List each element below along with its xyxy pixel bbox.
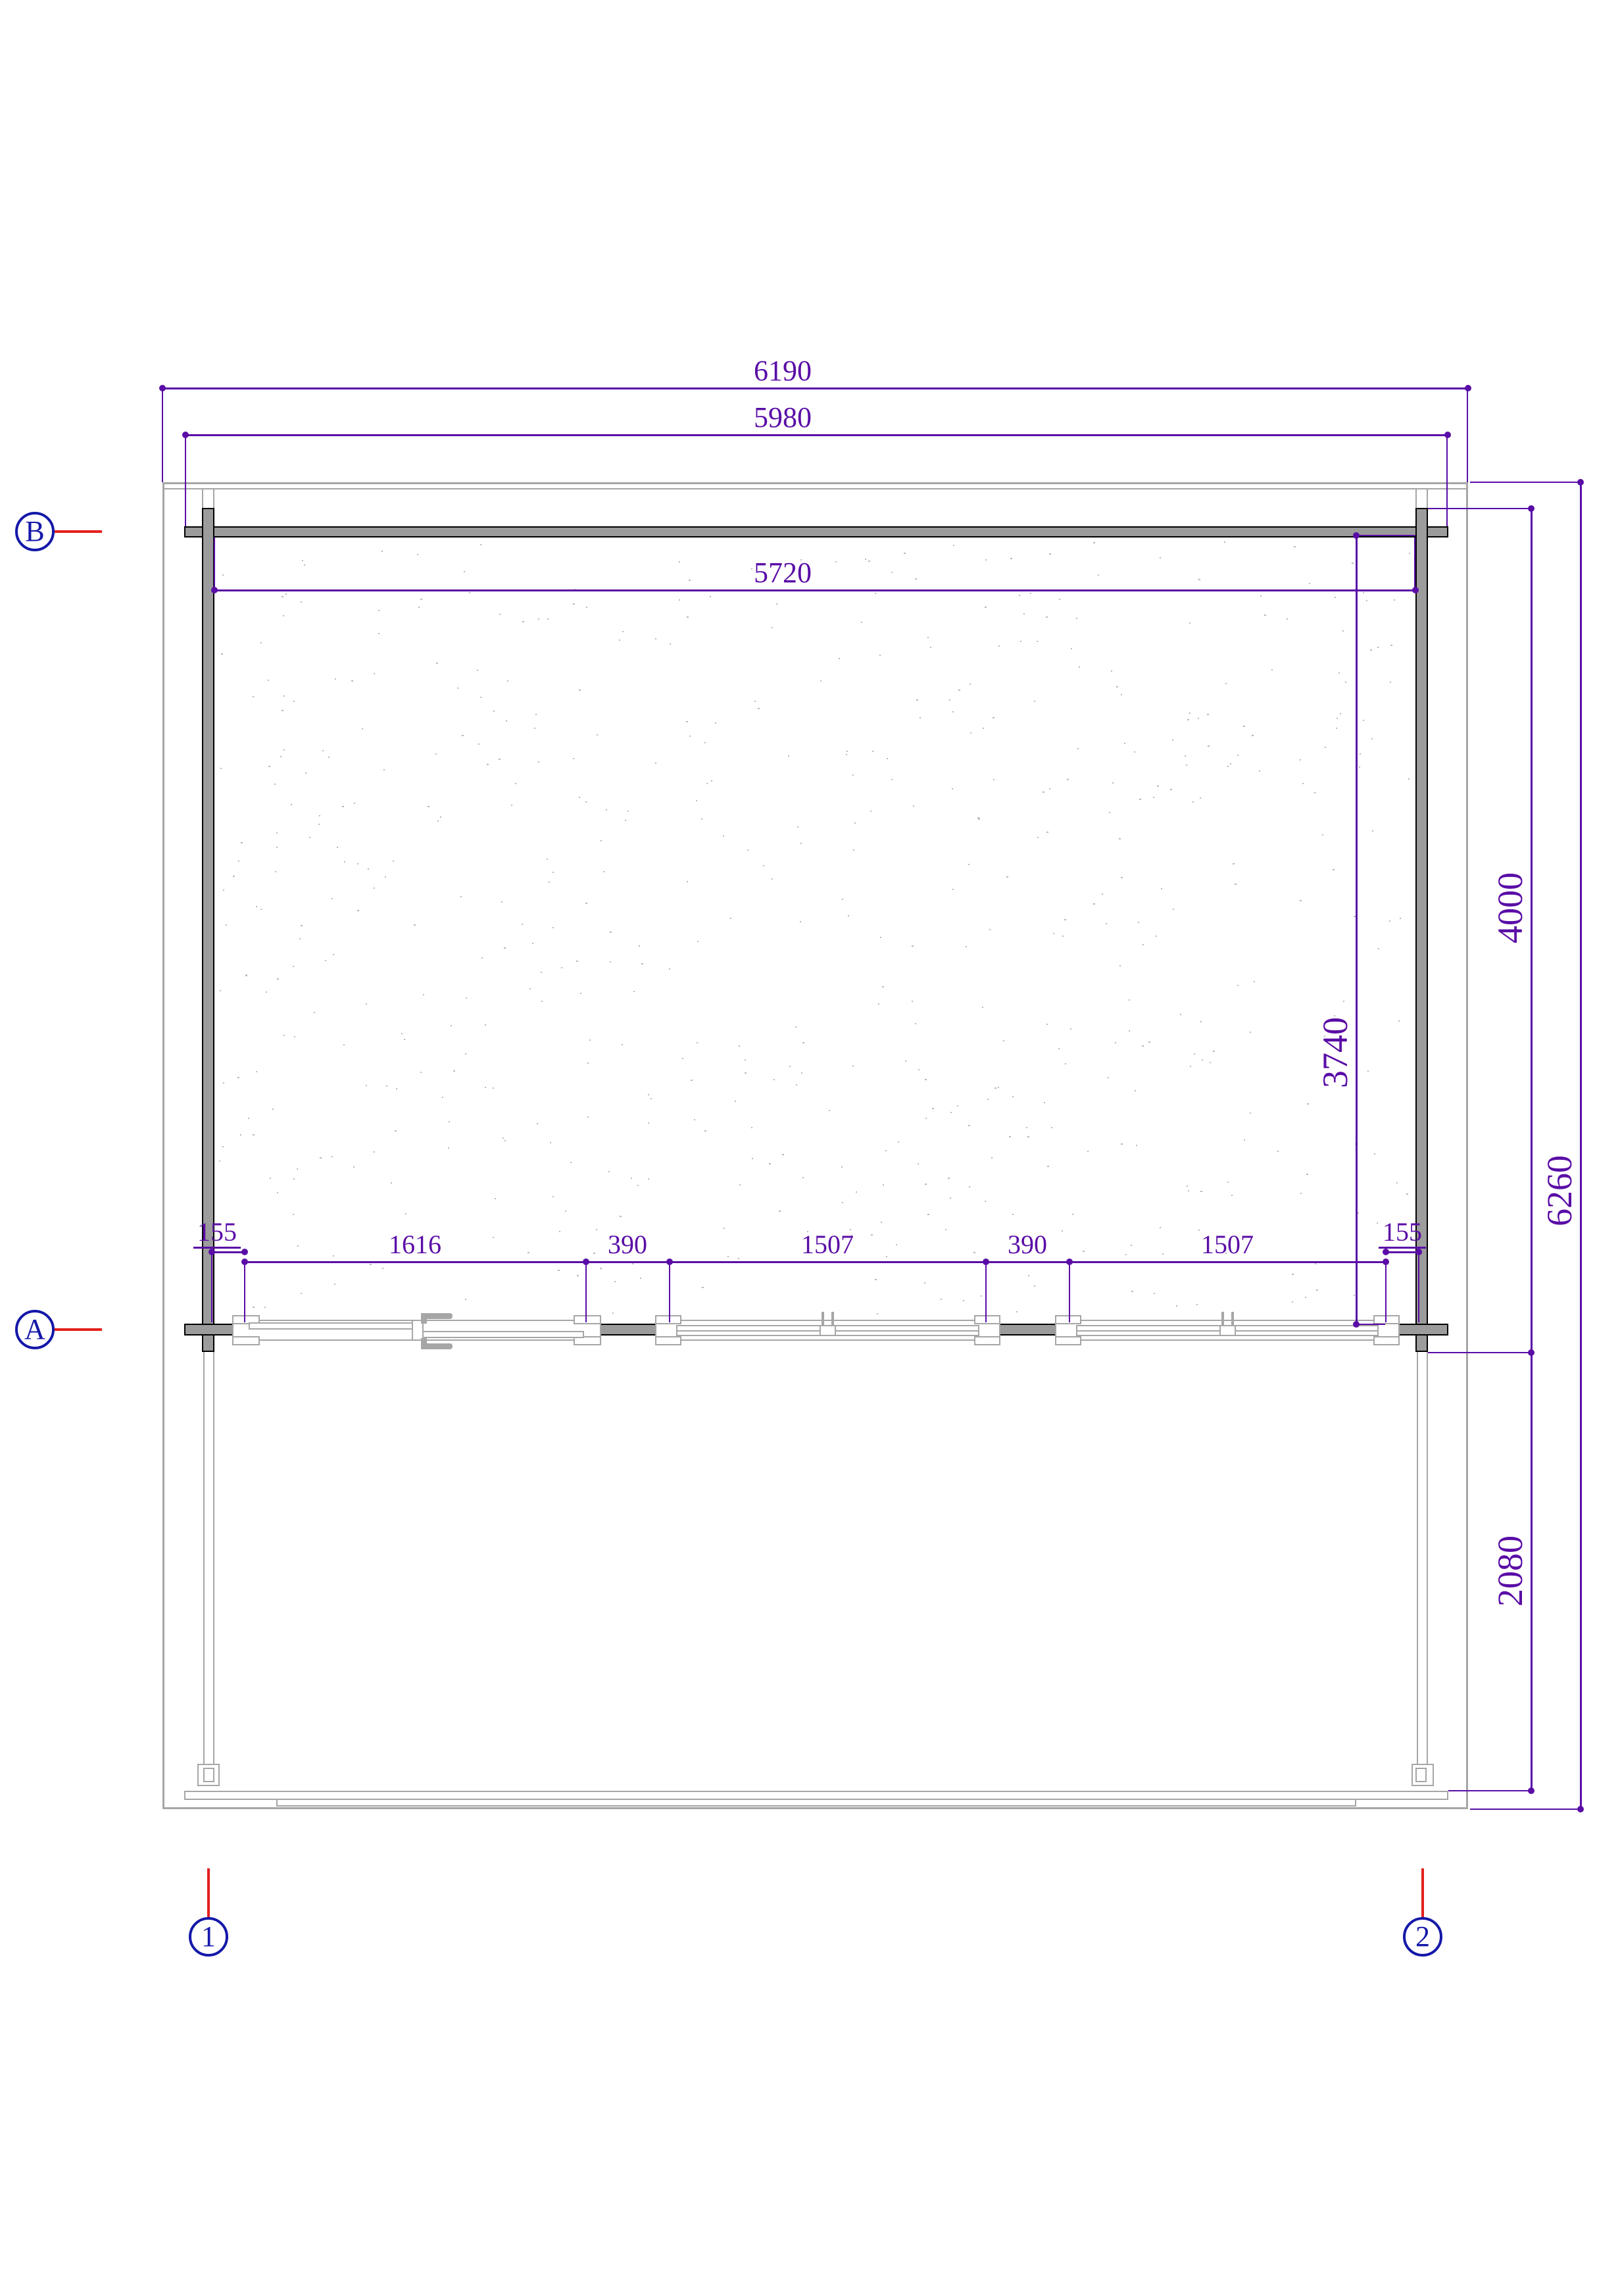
stipple-dot	[1186, 764, 1187, 766]
stipple-dot	[587, 1062, 589, 1064]
stipple-dot	[739, 1045, 740, 1047]
stipple-dot	[268, 766, 270, 767]
stipple-dot	[1200, 1191, 1202, 1192]
stipple-dot	[912, 1001, 913, 1002]
dimension-chain-line	[245, 1261, 1386, 1263]
stipple-dot	[485, 1087, 486, 1088]
dimension-interior-depth: 3740	[1317, 1017, 1353, 1088]
stipple-dot	[1287, 618, 1288, 620]
stipple-dot	[1198, 1230, 1200, 1231]
stipple-dot	[1044, 1102, 1045, 1103]
stipple-dot	[319, 815, 320, 816]
stipple-dot	[1277, 1151, 1279, 1152]
stipple-dot	[294, 1036, 295, 1037]
stipple-dot	[237, 1077, 239, 1078]
stipple-dot	[925, 1118, 927, 1119]
stipple-dot	[401, 1033, 403, 1034]
stipple-dot	[1337, 718, 1338, 719]
stipple-dot	[428, 806, 430, 807]
stipple-dot	[875, 593, 876, 594]
stipple-dot	[606, 809, 607, 811]
stipple-dot	[1049, 788, 1050, 789]
stipple-dot	[1135, 1090, 1136, 1091]
stipple-dot	[702, 1287, 704, 1288]
axis-a-leader	[55, 1328, 102, 1331]
stipple-dot	[1224, 541, 1225, 543]
stipple-dot	[275, 871, 276, 872]
stipple-dot	[1300, 1193, 1302, 1194]
stipple-dot	[260, 909, 262, 910]
stipple-dot	[852, 1065, 854, 1066]
stipple-dot	[682, 1058, 683, 1059]
stipple-dot	[927, 1214, 929, 1215]
stipple-dot	[913, 805, 914, 807]
stipple-dot	[318, 824, 320, 825]
stipple-dot	[1142, 1045, 1144, 1047]
stipple-dot	[981, 1295, 982, 1297]
stipple-dot	[639, 945, 640, 947]
stipple-dot	[1237, 755, 1239, 756]
dimension-door-width: 1616	[389, 1232, 441, 1258]
stipple-dot	[1049, 553, 1051, 555]
stipple-dot	[854, 822, 856, 824]
stipple-dot	[487, 764, 489, 765]
stipple-dot	[687, 881, 688, 882]
stipple-dot	[374, 673, 375, 674]
stipple-dot	[1210, 1062, 1211, 1063]
stipple-dot	[632, 1263, 633, 1264]
stipple-dot	[689, 580, 691, 581]
stipple-dot	[493, 1237, 494, 1238]
stipple-dot	[1400, 918, 1401, 919]
stipple-dot	[1109, 812, 1110, 813]
stipple-dot	[883, 1184, 884, 1185]
stipple-dot	[904, 553, 906, 554]
stipple-dot	[337, 847, 338, 848]
stipple-dot	[885, 1150, 887, 1151]
stipple-dot	[977, 817, 979, 818]
stipple-dot	[891, 779, 893, 780]
stipple-dot	[622, 1044, 623, 1045]
stipple-dot	[1139, 799, 1141, 800]
stipple-dot	[1208, 745, 1210, 747]
stipple-dot	[1366, 600, 1367, 601]
stipple-dot	[998, 1087, 999, 1088]
stipple-dot	[612, 1312, 614, 1314]
axis-b-leader	[55, 530, 102, 533]
stipple-dot	[620, 1216, 622, 1217]
stipple-dot	[1231, 1195, 1233, 1196]
stipple-dot	[529, 988, 531, 989]
stipple-dot	[1112, 782, 1114, 784]
axis-marker-2-label: 2	[1415, 1920, 1430, 1953]
stipple-dot	[1322, 834, 1323, 836]
stipple-dot	[507, 680, 508, 682]
stipple-dot	[619, 639, 620, 641]
stipple-dot	[868, 561, 870, 562]
stipple-dot	[1173, 909, 1174, 910]
stipple-dot	[1345, 682, 1346, 683]
stipple-dot	[1006, 876, 1008, 878]
stipple-dot	[1367, 1070, 1369, 1072]
stipple-dot	[573, 758, 574, 759]
stipple-dot	[423, 994, 424, 995]
stipple-dot	[465, 1299, 466, 1300]
stipple-dot	[589, 1039, 591, 1041]
stipple-dot	[268, 680, 269, 681]
stipple-dot	[1305, 1297, 1306, 1298]
stipple-dot	[378, 633, 380, 634]
stipple-dot	[1336, 728, 1337, 729]
stipple-dot	[669, 968, 670, 970]
extension-line	[1446, 435, 1448, 526]
stipple-dot	[331, 898, 333, 899]
stipple-dot	[881, 1222, 882, 1223]
stipple-dot	[800, 921, 801, 922]
stipple-dot	[325, 960, 326, 961]
room-floor-texture	[216, 539, 1413, 1322]
stipple-dot	[393, 861, 394, 862]
stipple-dot	[391, 1182, 392, 1184]
stipple-dot	[1046, 616, 1048, 618]
stipple-dot	[633, 991, 635, 992]
stipple-dot	[1185, 755, 1186, 757]
stipple-dot	[576, 961, 578, 962]
stipple-dot	[374, 887, 375, 889]
stipple-dot	[480, 697, 481, 698]
stipple-dot	[1129, 1030, 1130, 1032]
stipple-dot	[1372, 830, 1373, 832]
stipple-dot	[587, 1116, 589, 1118]
stipple-dot	[302, 560, 303, 561]
stipple-dot	[610, 961, 611, 962]
stipple-dot	[274, 784, 276, 785]
stipple-dot	[655, 762, 656, 764]
stipple-dot	[293, 701, 295, 702]
stipple-dot	[847, 751, 848, 752]
stipple-dot	[701, 818, 702, 820]
stipple-dot	[747, 849, 749, 851]
terrace-post-left-core	[203, 1768, 214, 1782]
stipple-dot	[1037, 837, 1039, 838]
stipple-dot	[504, 1140, 506, 1141]
dimension-window-width: 1507	[801, 1232, 854, 1258]
door-panel-right	[413, 1331, 584, 1338]
log-end-tab-left	[202, 488, 214, 509]
stipple-dot	[1134, 751, 1135, 753]
stipple-dot	[1037, 641, 1038, 642]
stipple-dot	[853, 849, 854, 851]
stipple-dot	[335, 678, 336, 680]
stipple-dot	[282, 710, 283, 711]
stipple-dot	[610, 932, 612, 933]
stipple-dot	[1250, 1112, 1251, 1114]
stipple-dot	[1047, 1166, 1049, 1167]
stipple-dot	[1027, 1136, 1029, 1137]
stipple-dot	[788, 755, 789, 757]
window-mullion-tab	[831, 1312, 834, 1326]
stipple-dot	[366, 1085, 367, 1086]
stipple-dot	[846, 754, 847, 755]
stipple-dot	[464, 571, 465, 572]
stipple-dot	[601, 840, 602, 841]
stipple-dot	[958, 689, 960, 691]
terrace-rail-right	[1417, 1352, 1418, 1765]
stipple-dot	[1325, 747, 1326, 748]
stipple-dot	[957, 1105, 958, 1107]
stipple-dot	[735, 1101, 736, 1102]
stipple-dot	[260, 642, 262, 643]
stipple-dot	[600, 1268, 602, 1269]
stipple-dot	[370, 1264, 372, 1265]
stipple-dot	[1189, 712, 1190, 714]
stipple-dot	[1012, 1096, 1014, 1097]
stipple-dot	[241, 842, 243, 843]
wall-north	[184, 526, 1448, 537]
stipple-dot	[282, 596, 283, 597]
stipple-dot	[727, 1256, 729, 1257]
stipple-dot	[852, 774, 854, 776]
stipple-dot	[801, 1072, 802, 1074]
stipple-dot	[948, 1178, 950, 1179]
stipple-dot	[1071, 648, 1072, 649]
stipple-dot	[622, 631, 624, 632]
stipple-dot	[704, 742, 706, 743]
stipple-dot	[969, 1186, 970, 1187]
stipple-dot	[385, 876, 386, 878]
stipple-dot	[436, 662, 438, 664]
stipple-dot	[1156, 936, 1157, 937]
stipple-dot	[1070, 1028, 1071, 1030]
stipple-dot	[223, 889, 224, 891]
stipple-dot	[291, 804, 292, 805]
stipple-dot	[309, 837, 310, 838]
stipple-dot	[1315, 1263, 1316, 1264]
stipple-dot	[469, 592, 470, 593]
stipple-dot	[585, 903, 587, 904]
dim-tick	[1383, 1249, 1389, 1255]
stipple-dot	[420, 1072, 422, 1073]
stipple-dot	[549, 882, 550, 883]
door-jamb-block	[574, 1315, 601, 1324]
dim-tick	[1412, 587, 1419, 593]
stipple-dot	[779, 1210, 781, 1212]
stipple-dot	[1065, 1063, 1066, 1064]
stipple-dot	[1198, 718, 1199, 719]
terrace-rail-left	[213, 1352, 214, 1765]
extension-line	[1356, 535, 1415, 536]
window-mullion-tab	[822, 1312, 824, 1326]
stipple-dot	[1333, 869, 1335, 870]
stipple-dot	[738, 1258, 739, 1259]
dimension-terrace-depth-line	[1531, 1353, 1533, 1791]
stipple-dot	[758, 708, 760, 709]
stipple-dot	[270, 1178, 271, 1179]
stipple-dot	[865, 559, 866, 560]
stipple-dot	[1307, 1103, 1309, 1105]
stipple-dot	[686, 721, 688, 722]
stipple-dot	[222, 1146, 224, 1147]
stipple-dot	[710, 596, 711, 597]
stipple-dot	[952, 788, 953, 789]
stipple-dot	[880, 937, 881, 938]
stipple-dot	[374, 1151, 375, 1153]
stipple-dot	[648, 1178, 649, 1180]
stipple-dot	[1076, 618, 1077, 619]
stipple-dot	[354, 803, 355, 804]
dimension-interior-width-line	[214, 589, 1415, 591]
stipple-dot	[1161, 888, 1162, 889]
stipple-dot	[1398, 1020, 1400, 1022]
stipple-dot	[552, 1196, 554, 1197]
stipple-dot	[625, 820, 626, 821]
dimension-overall-width-line	[162, 387, 1468, 389]
deck-step-edge	[276, 1799, 1356, 1807]
terrace-rail-right	[1427, 1352, 1428, 1765]
extension-line	[1418, 1252, 1419, 1322]
stipple-dot	[223, 1082, 224, 1084]
stipple-dot	[573, 603, 575, 605]
stipple-dot	[272, 1109, 274, 1110]
stipple-dot	[240, 1134, 241, 1136]
stipple-dot	[1378, 948, 1379, 949]
stipple-dot	[333, 1255, 334, 1257]
stipple-dot	[220, 990, 221, 991]
stipple-dot	[580, 993, 581, 994]
stipple-dot	[655, 638, 656, 639]
stipple-dot	[395, 1130, 397, 1132]
stipple-dot	[640, 1278, 641, 1279]
stipple-dot	[1334, 1015, 1335, 1016]
stipple-dot	[301, 925, 303, 926]
stipple-dot	[528, 1252, 529, 1253]
stipple-dot	[297, 1168, 298, 1170]
dimension-terrace-depth: 2080	[1492, 1535, 1528, 1607]
stipple-dot	[730, 918, 731, 919]
stipple-dot	[1292, 1274, 1294, 1275]
stipple-dot	[968, 1125, 970, 1126]
stipple-dot	[534, 728, 535, 729]
dimension-overall-depth: 6260	[1542, 1155, 1577, 1226]
axis-marker-1: 1	[189, 1917, 228, 1957]
stipple-dot	[1354, 1295, 1355, 1296]
stipple-dot	[1087, 1151, 1089, 1152]
window-jamb-block	[1373, 1315, 1400, 1324]
stipple-dot	[1162, 1253, 1164, 1255]
stipple-dot	[1051, 1127, 1052, 1128]
stipple-dot	[891, 572, 893, 573]
stipple-dot	[1062, 936, 1064, 937]
stipple-dot	[1189, 622, 1190, 624]
stipple-dot	[1192, 801, 1194, 803]
stipple-dot	[405, 1213, 406, 1214]
extension-line	[1069, 1262, 1070, 1322]
stipple-dot	[448, 1147, 449, 1149]
stipple-dot	[627, 811, 629, 812]
stipple-dot	[998, 645, 1000, 647]
stipple-dot	[382, 1268, 383, 1269]
extension-line	[1428, 508, 1531, 509]
stipple-dot	[795, 1026, 797, 1028]
stipple-dot	[579, 689, 581, 691]
stipple-dot	[704, 1130, 706, 1132]
stipple-dot	[1131, 1245, 1132, 1246]
stipple-dot	[547, 859, 548, 860]
stipple-dot	[1009, 1136, 1011, 1137]
axis-marker-1-label: 1	[201, 1920, 216, 1953]
stipple-dot	[437, 820, 439, 822]
stipple-dot	[776, 603, 777, 605]
stipple-dot	[586, 607, 587, 608]
stipple-dot	[920, 717, 921, 718]
stipple-dot	[1121, 694, 1122, 695]
stipple-dot	[537, 1123, 538, 1124]
stipple-dot	[842, 1202, 843, 1203]
stipple-dot	[987, 1099, 989, 1100]
stipple-dot	[966, 946, 967, 947]
stipple-dot	[723, 836, 724, 837]
stipple-dot	[1374, 1153, 1375, 1155]
stipple-dot	[226, 924, 227, 926]
door-jamb-block	[232, 1336, 260, 1345]
floor-plan-drawing: 6190 5980 5720 1616 390 1507 390 1507 15…	[0, 0, 1620, 2296]
stipple-dot	[1196, 1304, 1198, 1305]
stipple-dot	[1227, 1182, 1229, 1183]
axis-1-leader	[207, 1868, 210, 1917]
stipple-dot	[706, 783, 708, 784]
stipple-dot	[968, 864, 970, 865]
stipple-dot	[368, 868, 369, 870]
dimension-overall-depth-line	[1580, 482, 1582, 1809]
stipple-dot	[301, 1293, 302, 1294]
stipple-dot	[460, 896, 462, 897]
stipple-dot	[1093, 542, 1095, 543]
roof-inner-edge	[164, 488, 1466, 489]
stipple-dot	[535, 714, 537, 715]
stipple-dot	[357, 910, 359, 911]
stipple-dot	[1059, 599, 1060, 600]
stipple-dot	[1200, 1021, 1202, 1022]
extension-line	[985, 1262, 987, 1322]
stipple-dot	[511, 805, 512, 806]
dim-tick	[241, 1249, 248, 1255]
stipple-dot	[532, 943, 533, 944]
stipple-dot	[570, 1162, 572, 1163]
stipple-dot	[1172, 739, 1173, 741]
stipple-dot	[1111, 670, 1112, 672]
stipple-dot	[648, 1122, 649, 1124]
stipple-dot	[593, 1253, 595, 1254]
stipple-dot	[1180, 1014, 1181, 1015]
stipple-dot	[1300, 900, 1302, 901]
stipple-dot	[541, 972, 542, 973]
stipple-dot	[515, 783, 516, 784]
stipple-dot	[1390, 645, 1392, 646]
stipple-dot	[1083, 1251, 1085, 1252]
stipple-dot	[478, 743, 479, 745]
stipple-dot	[547, 618, 549, 620]
stipple-dot	[322, 750, 324, 751]
stipple-dot	[829, 1110, 830, 1111]
stipple-dot	[1072, 1214, 1073, 1215]
stipple-dot	[973, 1252, 975, 1253]
dimension-pier-width: 390	[608, 1232, 647, 1258]
stipple-dot	[1271, 669, 1273, 670]
stipple-dot	[561, 967, 562, 968]
stipple-dot	[299, 938, 301, 939]
stipple-dot	[608, 1171, 610, 1172]
stipple-dot	[1026, 1127, 1027, 1128]
